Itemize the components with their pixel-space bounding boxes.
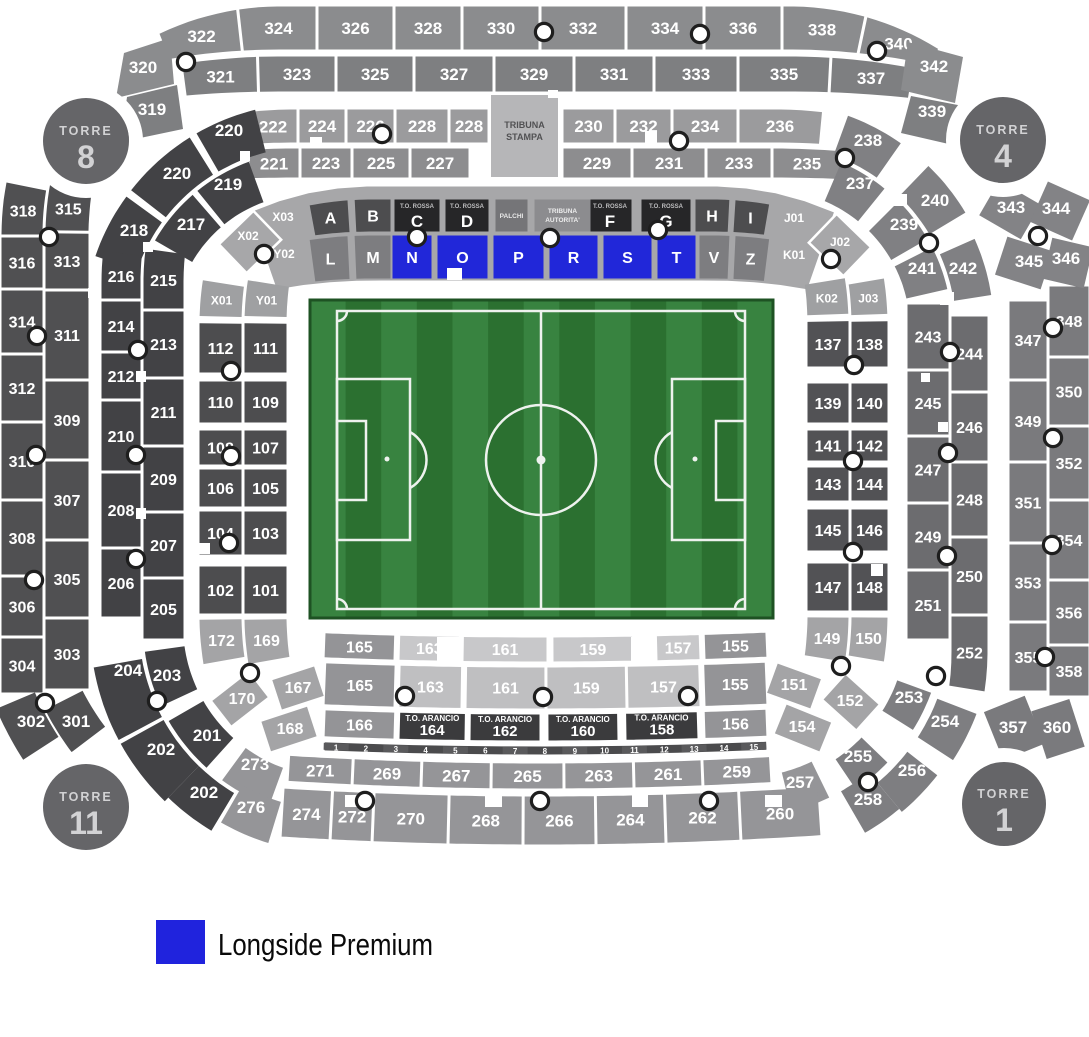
svg-text:342: 342 [920, 57, 948, 76]
svg-text:305: 305 [54, 572, 81, 589]
svg-text:161: 161 [492, 681, 519, 698]
svg-text:209: 209 [150, 472, 177, 489]
svg-text:208: 208 [108, 503, 135, 520]
svg-text:13: 13 [690, 745, 699, 754]
svg-text:9: 9 [573, 747, 578, 756]
svg-text:243: 243 [915, 329, 942, 346]
svg-text:311: 311 [54, 328, 80, 345]
svg-text:149: 149 [814, 631, 841, 648]
svg-text:234: 234 [691, 117, 720, 136]
svg-text:218: 218 [120, 221, 148, 240]
svg-text:309: 309 [54, 413, 81, 430]
svg-text:219: 219 [214, 175, 242, 194]
svg-text:306: 306 [9, 599, 36, 616]
svg-text:349: 349 [1015, 414, 1042, 431]
svg-text:263: 263 [585, 767, 613, 786]
svg-text:154: 154 [789, 719, 816, 736]
svg-text:111: 111 [253, 341, 278, 358]
svg-text:172: 172 [208, 633, 235, 650]
svg-text:12: 12 [660, 746, 669, 755]
svg-text:316: 316 [9, 255, 36, 272]
svg-text:228: 228 [408, 117, 436, 136]
svg-text:222: 222 [259, 118, 287, 137]
svg-text:157: 157 [665, 640, 692, 657]
svg-text:216: 216 [108, 269, 135, 286]
svg-text:225: 225 [367, 154, 395, 173]
svg-text:Y02: Y02 [273, 247, 295, 261]
svg-text:239: 239 [890, 215, 918, 234]
svg-text:T.O. ROSSA: T.O. ROSSA [450, 204, 485, 210]
svg-text:333: 333 [682, 65, 710, 84]
svg-text:304: 304 [9, 658, 36, 675]
svg-text:251: 251 [915, 598, 942, 615]
svg-text:S: S [622, 250, 633, 267]
svg-text:322: 322 [187, 27, 215, 46]
svg-text:261: 261 [654, 765, 682, 784]
svg-text:152: 152 [837, 693, 864, 710]
svg-text:156: 156 [722, 717, 749, 734]
svg-text:143: 143 [815, 477, 842, 494]
svg-text:T.O. ROSSA: T.O. ROSSA [649, 204, 684, 210]
svg-text:331: 331 [600, 65, 628, 84]
svg-text:301: 301 [62, 712, 90, 731]
svg-text:138: 138 [856, 337, 883, 354]
svg-text:318: 318 [10, 203, 37, 220]
svg-text:1: 1 [995, 802, 1013, 838]
svg-text:356: 356 [1056, 605, 1083, 622]
svg-text:107: 107 [252, 440, 279, 457]
svg-text:150: 150 [855, 631, 882, 648]
svg-text:220: 220 [163, 164, 191, 183]
svg-text:103: 103 [252, 526, 279, 543]
svg-text:335: 335 [770, 65, 798, 84]
svg-text:105: 105 [252, 481, 279, 498]
svg-text:M: M [366, 250, 379, 267]
svg-text:D: D [461, 212, 473, 231]
svg-text:158: 158 [649, 722, 674, 739]
svg-text:151: 151 [781, 677, 808, 694]
svg-text:320: 320 [129, 58, 157, 77]
svg-text:T: T [672, 250, 682, 267]
svg-text:8: 8 [77, 139, 95, 175]
svg-text:274: 274 [292, 805, 321, 824]
svg-text:339: 339 [918, 102, 946, 121]
svg-text:332: 332 [569, 19, 597, 38]
svg-text:6: 6 [483, 747, 488, 756]
svg-text:B: B [367, 208, 379, 225]
svg-text:110: 110 [208, 395, 234, 412]
svg-text:155: 155 [722, 639, 749, 656]
svg-text:15: 15 [749, 743, 758, 752]
svg-text:265: 265 [513, 767, 541, 786]
svg-text:276: 276 [237, 798, 265, 817]
svg-text:242: 242 [949, 259, 977, 278]
svg-text:168: 168 [277, 721, 304, 738]
svg-text:Longside Premium: Longside Premium [218, 927, 433, 962]
svg-text:267: 267 [442, 766, 470, 785]
svg-text:352: 352 [1056, 456, 1083, 473]
svg-text:270: 270 [397, 810, 425, 829]
svg-text:A: A [325, 211, 337, 228]
svg-text:AUTORITA': AUTORITA' [545, 217, 580, 224]
svg-text:11: 11 [69, 805, 103, 841]
svg-text:228: 228 [455, 117, 483, 136]
svg-text:165: 165 [346, 639, 373, 656]
svg-text:266: 266 [545, 812, 573, 831]
svg-text:358: 358 [1056, 664, 1083, 681]
svg-text:159: 159 [573, 681, 600, 698]
svg-text:246: 246 [956, 420, 983, 437]
svg-text:245: 245 [915, 396, 942, 413]
svg-text:8: 8 [543, 747, 548, 756]
svg-text:167: 167 [285, 680, 312, 697]
svg-text:109: 109 [252, 395, 279, 412]
svg-text:308: 308 [9, 531, 36, 548]
svg-text:206: 206 [108, 576, 135, 593]
svg-text:163: 163 [417, 680, 444, 697]
svg-text:10: 10 [600, 747, 609, 756]
svg-text:TORRE: TORRE [59, 790, 113, 804]
svg-text:238: 238 [854, 131, 882, 150]
svg-text:241: 241 [908, 259, 936, 278]
svg-text:106: 106 [207, 481, 234, 498]
svg-text:253: 253 [895, 688, 923, 707]
svg-text:TORRE: TORRE [976, 123, 1030, 137]
svg-text:R: R [568, 250, 580, 267]
svg-text:J01: J01 [784, 211, 804, 225]
svg-text:231: 231 [655, 154, 683, 173]
svg-text:312: 312 [9, 381, 36, 398]
svg-text:X01: X01 [211, 293, 233, 307]
svg-text:V: V [709, 250, 720, 267]
svg-text:1: 1 [334, 743, 339, 752]
svg-text:302: 302 [17, 712, 45, 731]
svg-text:220: 220 [215, 121, 243, 140]
svg-text:160: 160 [570, 723, 595, 740]
svg-text:4: 4 [423, 746, 428, 755]
svg-text:101: 101 [252, 583, 279, 600]
svg-text:325: 325 [361, 65, 389, 84]
svg-text:Y01: Y01 [256, 293, 278, 307]
svg-text:315: 315 [55, 201, 82, 218]
svg-text:TRIBUNA: TRIBUNA [504, 120, 545, 130]
svg-text:230: 230 [574, 117, 602, 136]
svg-text:344: 344 [1042, 199, 1071, 218]
svg-text:360: 360 [1043, 718, 1071, 737]
svg-text:307: 307 [54, 493, 81, 510]
svg-text:T.O. ROSSA: T.O. ROSSA [593, 204, 628, 210]
svg-text:X03: X03 [272, 210, 294, 224]
svg-text:268: 268 [472, 811, 500, 830]
svg-text:139: 139 [815, 396, 842, 413]
svg-text:N: N [406, 250, 418, 267]
svg-text:202: 202 [190, 783, 218, 802]
svg-text:258: 258 [854, 790, 882, 809]
svg-text:224: 224 [308, 117, 337, 136]
svg-text:201: 201 [193, 726, 221, 745]
svg-text:319: 319 [138, 100, 166, 119]
svg-text:165: 165 [346, 678, 373, 695]
svg-text:142: 142 [856, 438, 883, 455]
svg-text:14: 14 [720, 744, 729, 753]
svg-text:262: 262 [688, 809, 716, 828]
svg-text:141: 141 [815, 438, 842, 455]
svg-text:351: 351 [1015, 495, 1042, 512]
svg-text:240: 240 [921, 191, 949, 210]
svg-text:3: 3 [394, 745, 399, 754]
svg-text:338: 338 [808, 20, 836, 39]
svg-text:K02: K02 [816, 291, 838, 305]
svg-text:264: 264 [616, 811, 645, 830]
svg-text:2: 2 [364, 744, 369, 753]
svg-text:155: 155 [722, 677, 749, 694]
svg-text:TRIBUNA: TRIBUNA [548, 208, 578, 215]
svg-text:202: 202 [147, 740, 175, 759]
svg-text:247: 247 [915, 462, 942, 479]
svg-text:204: 204 [114, 661, 143, 680]
svg-text:329: 329 [520, 65, 548, 84]
svg-text:H: H [706, 208, 718, 225]
svg-text:223: 223 [312, 154, 340, 173]
svg-text:I: I [748, 210, 752, 227]
svg-text:137: 137 [815, 337, 842, 354]
svg-text:213: 213 [150, 337, 177, 354]
svg-text:K01: K01 [783, 248, 805, 262]
svg-text:357: 357 [999, 718, 1027, 737]
svg-text:164: 164 [420, 722, 446, 739]
svg-text:244: 244 [956, 346, 983, 363]
svg-text:260: 260 [766, 805, 794, 824]
svg-text:STAMPA: STAMPA [506, 132, 543, 142]
svg-text:347: 347 [1015, 333, 1042, 350]
svg-text:X02: X02 [237, 229, 259, 243]
svg-text:PALCHI: PALCHI [500, 213, 524, 220]
svg-text:256: 256 [898, 761, 926, 780]
svg-text:330: 330 [487, 19, 515, 38]
svg-text:4: 4 [994, 138, 1012, 174]
svg-text:313: 313 [54, 254, 81, 271]
svg-text:323: 323 [283, 65, 311, 84]
svg-text:249: 249 [915, 529, 942, 546]
svg-text:145: 145 [815, 523, 842, 540]
svg-text:140: 140 [856, 396, 883, 413]
svg-text:212: 212 [108, 369, 135, 386]
svg-text:337: 337 [857, 69, 885, 88]
svg-text:J02: J02 [830, 235, 850, 249]
svg-text:205: 205 [150, 602, 177, 619]
svg-text:324: 324 [264, 19, 293, 38]
svg-text:J03: J03 [858, 291, 878, 305]
svg-text:350: 350 [1056, 384, 1083, 401]
svg-text:236: 236 [766, 117, 794, 136]
svg-text:255: 255 [844, 747, 872, 766]
svg-text:157: 157 [650, 679, 677, 696]
svg-text:328: 328 [414, 19, 442, 38]
svg-text:7: 7 [513, 747, 518, 756]
svg-text:148: 148 [856, 580, 883, 597]
svg-text:TORRE: TORRE [59, 124, 113, 138]
svg-text:214: 214 [108, 319, 135, 336]
svg-text:102: 102 [207, 583, 234, 600]
svg-text:T.O. ROSSA: T.O. ROSSA [400, 204, 435, 210]
svg-text:146: 146 [856, 523, 883, 540]
svg-text:250: 250 [956, 569, 983, 586]
svg-text:170: 170 [229, 691, 256, 708]
svg-text:L: L [326, 252, 336, 269]
svg-text:254: 254 [931, 712, 960, 731]
svg-text:229: 229 [583, 154, 611, 173]
svg-text:233: 233 [725, 154, 753, 173]
svg-text:144: 144 [856, 477, 883, 494]
svg-text:210: 210 [108, 429, 135, 446]
svg-text:321: 321 [206, 67, 234, 86]
svg-text:F: F [605, 212, 615, 231]
svg-text:TORRE: TORRE [977, 787, 1031, 801]
svg-text:259: 259 [723, 762, 751, 781]
svg-text:346: 346 [1052, 249, 1080, 268]
svg-text:221: 221 [260, 154, 288, 173]
svg-text:147: 147 [815, 580, 842, 597]
svg-text:273: 273 [241, 755, 269, 774]
svg-text:112: 112 [208, 341, 234, 358]
svg-text:5: 5 [453, 746, 458, 755]
svg-text:235: 235 [793, 155, 821, 174]
svg-text:162: 162 [492, 723, 517, 740]
svg-text:326: 326 [341, 19, 369, 38]
svg-text:336: 336 [729, 19, 757, 38]
svg-text:11: 11 [630, 746, 639, 755]
svg-text:343: 343 [997, 198, 1025, 217]
svg-text:Z: Z [746, 251, 756, 268]
svg-text:334: 334 [651, 19, 680, 38]
svg-text:269: 269 [373, 764, 401, 783]
svg-text:207: 207 [150, 538, 177, 555]
svg-text:252: 252 [956, 645, 983, 662]
svg-text:353: 353 [1015, 575, 1042, 592]
svg-text:166: 166 [346, 717, 373, 734]
svg-text:169: 169 [253, 633, 280, 650]
svg-text:271: 271 [306, 761, 334, 780]
svg-text:159: 159 [580, 642, 607, 659]
svg-text:O: O [456, 250, 468, 267]
svg-text:248: 248 [956, 492, 983, 509]
svg-text:227: 227 [426, 154, 454, 173]
svg-text:161: 161 [492, 642, 519, 659]
svg-text:203: 203 [153, 666, 181, 685]
svg-text:P: P [513, 250, 524, 267]
svg-text:211: 211 [151, 405, 177, 422]
svg-text:217: 217 [177, 215, 205, 234]
svg-text:237: 237 [846, 174, 874, 193]
svg-text:303: 303 [54, 647, 81, 664]
svg-text:345: 345 [1015, 252, 1043, 271]
svg-text:215: 215 [150, 273, 177, 290]
svg-text:327: 327 [440, 65, 468, 84]
